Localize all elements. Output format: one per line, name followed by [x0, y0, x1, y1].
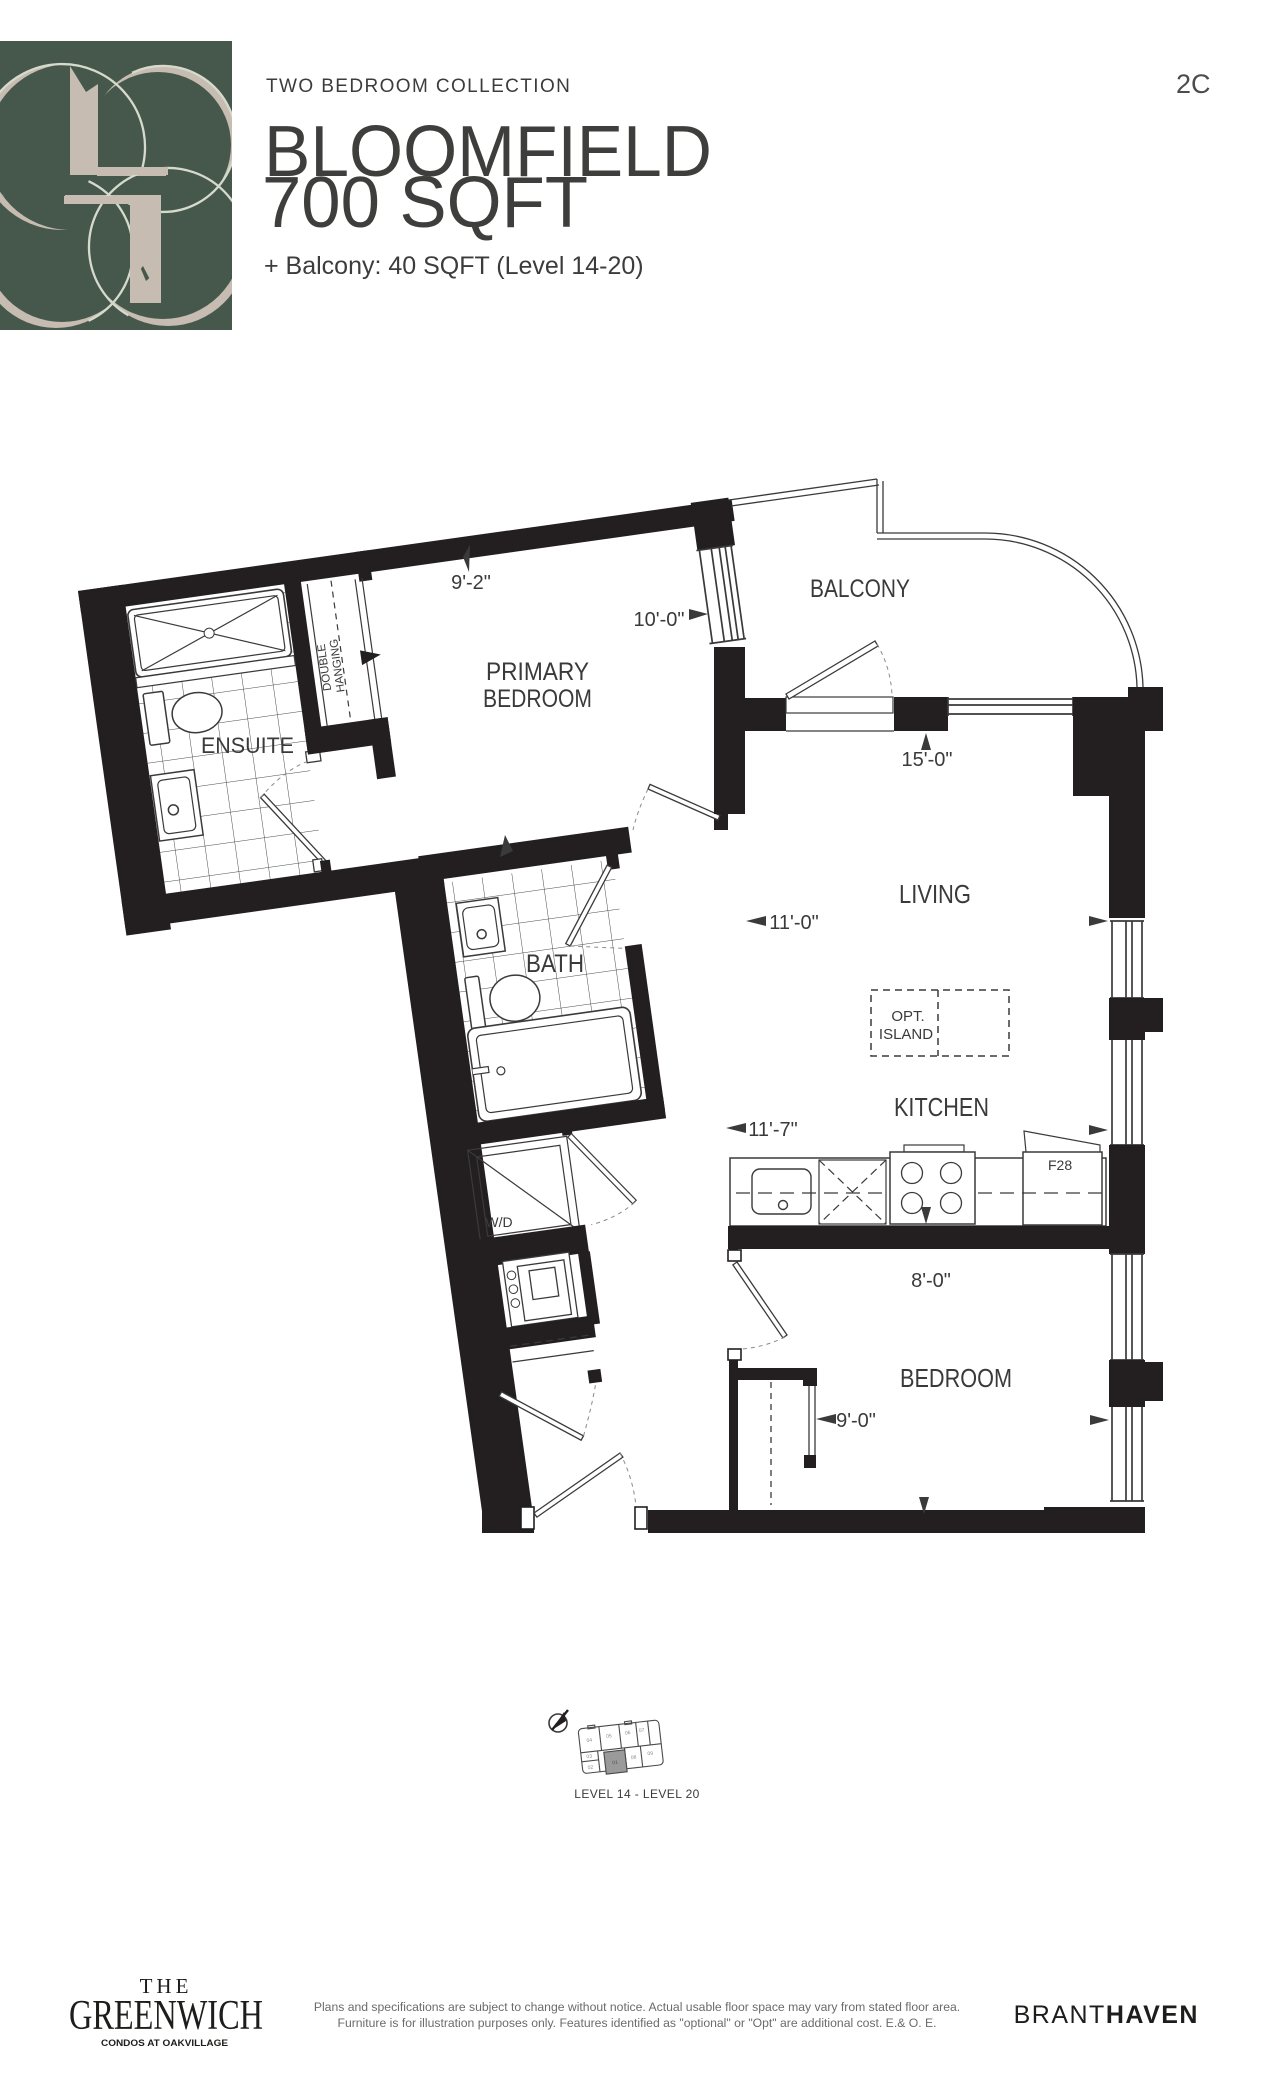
svg-text:LIVING: LIVING — [899, 879, 971, 909]
svg-text:9'-0": 9'-0" — [836, 1410, 876, 1432]
svg-text:09: 09 — [647, 1751, 653, 1758]
svg-text:BRANTHAVEN: BRANTHAVEN — [1014, 2001, 1199, 2029]
svg-text:BALCONY: BALCONY — [810, 575, 910, 603]
svg-text:15'-0": 15'-0" — [902, 749, 953, 771]
svg-text:PRIMARY: PRIMARY — [486, 658, 589, 686]
svg-text:8'-0": 8'-0" — [911, 1270, 951, 1292]
svg-text:11'-7": 11'-7" — [748, 1119, 797, 1141]
svg-text:04: 04 — [586, 1737, 592, 1744]
svg-text:2C: 2C — [1176, 69, 1211, 99]
svg-text:F28: F28 — [1048, 1157, 1072, 1173]
svg-text:TWO BEDROOM COLLECTION: TWO BEDROOM COLLECTION — [266, 76, 571, 97]
svg-text:10'-0": 10'-0" — [634, 609, 685, 631]
svg-text:LEVEL 14 - LEVEL 20: LEVEL 14 - LEVEL 20 — [574, 1787, 699, 1801]
svg-text:ISLAND: ISLAND — [879, 1026, 933, 1043]
svg-text:9'-2": 9'-2" — [451, 572, 491, 594]
svg-text:W/D: W/D — [485, 1214, 512, 1230]
svg-text:BATH: BATH — [526, 950, 584, 978]
svg-text:KITCHEN: KITCHEN — [894, 1092, 989, 1122]
svg-text:BEDROOM: BEDROOM — [483, 685, 592, 713]
svg-text:Furniture is for illustration: Furniture is for illustration purposes o… — [338, 2016, 937, 2030]
svg-text:GREENWICH: GREENWICH — [69, 1993, 263, 2039]
svg-text:700 SQFT: 700 SQFT — [262, 163, 588, 243]
svg-text:05: 05 — [606, 1733, 612, 1740]
svg-text:08: 08 — [631, 1755, 637, 1762]
svg-text:OPT.: OPT. — [891, 1008, 924, 1025]
svg-text:03: 03 — [586, 1754, 592, 1761]
svg-text:BEDROOM: BEDROOM — [900, 1363, 1012, 1393]
svg-text:02: 02 — [587, 1765, 593, 1772]
svg-text:+ Balcony: 40 SQFT (Level 14-2: + Balcony: 40 SQFT (Level 14-20) — [264, 252, 644, 280]
svg-text:11'-0": 11'-0" — [769, 912, 818, 934]
svg-text:CONDOS AT OAKVILLAGE: CONDOS AT OAKVILLAGE — [101, 2038, 228, 2049]
svg-text:Plans and specifications are s: Plans and specifications are subject to … — [314, 2000, 960, 2014]
svg-text:06: 06 — [625, 1730, 631, 1737]
svg-text:ENSUITE: ENSUITE — [201, 733, 294, 758]
svg-text:01: 01 — [612, 1760, 618, 1767]
svg-text:07: 07 — [639, 1727, 645, 1734]
